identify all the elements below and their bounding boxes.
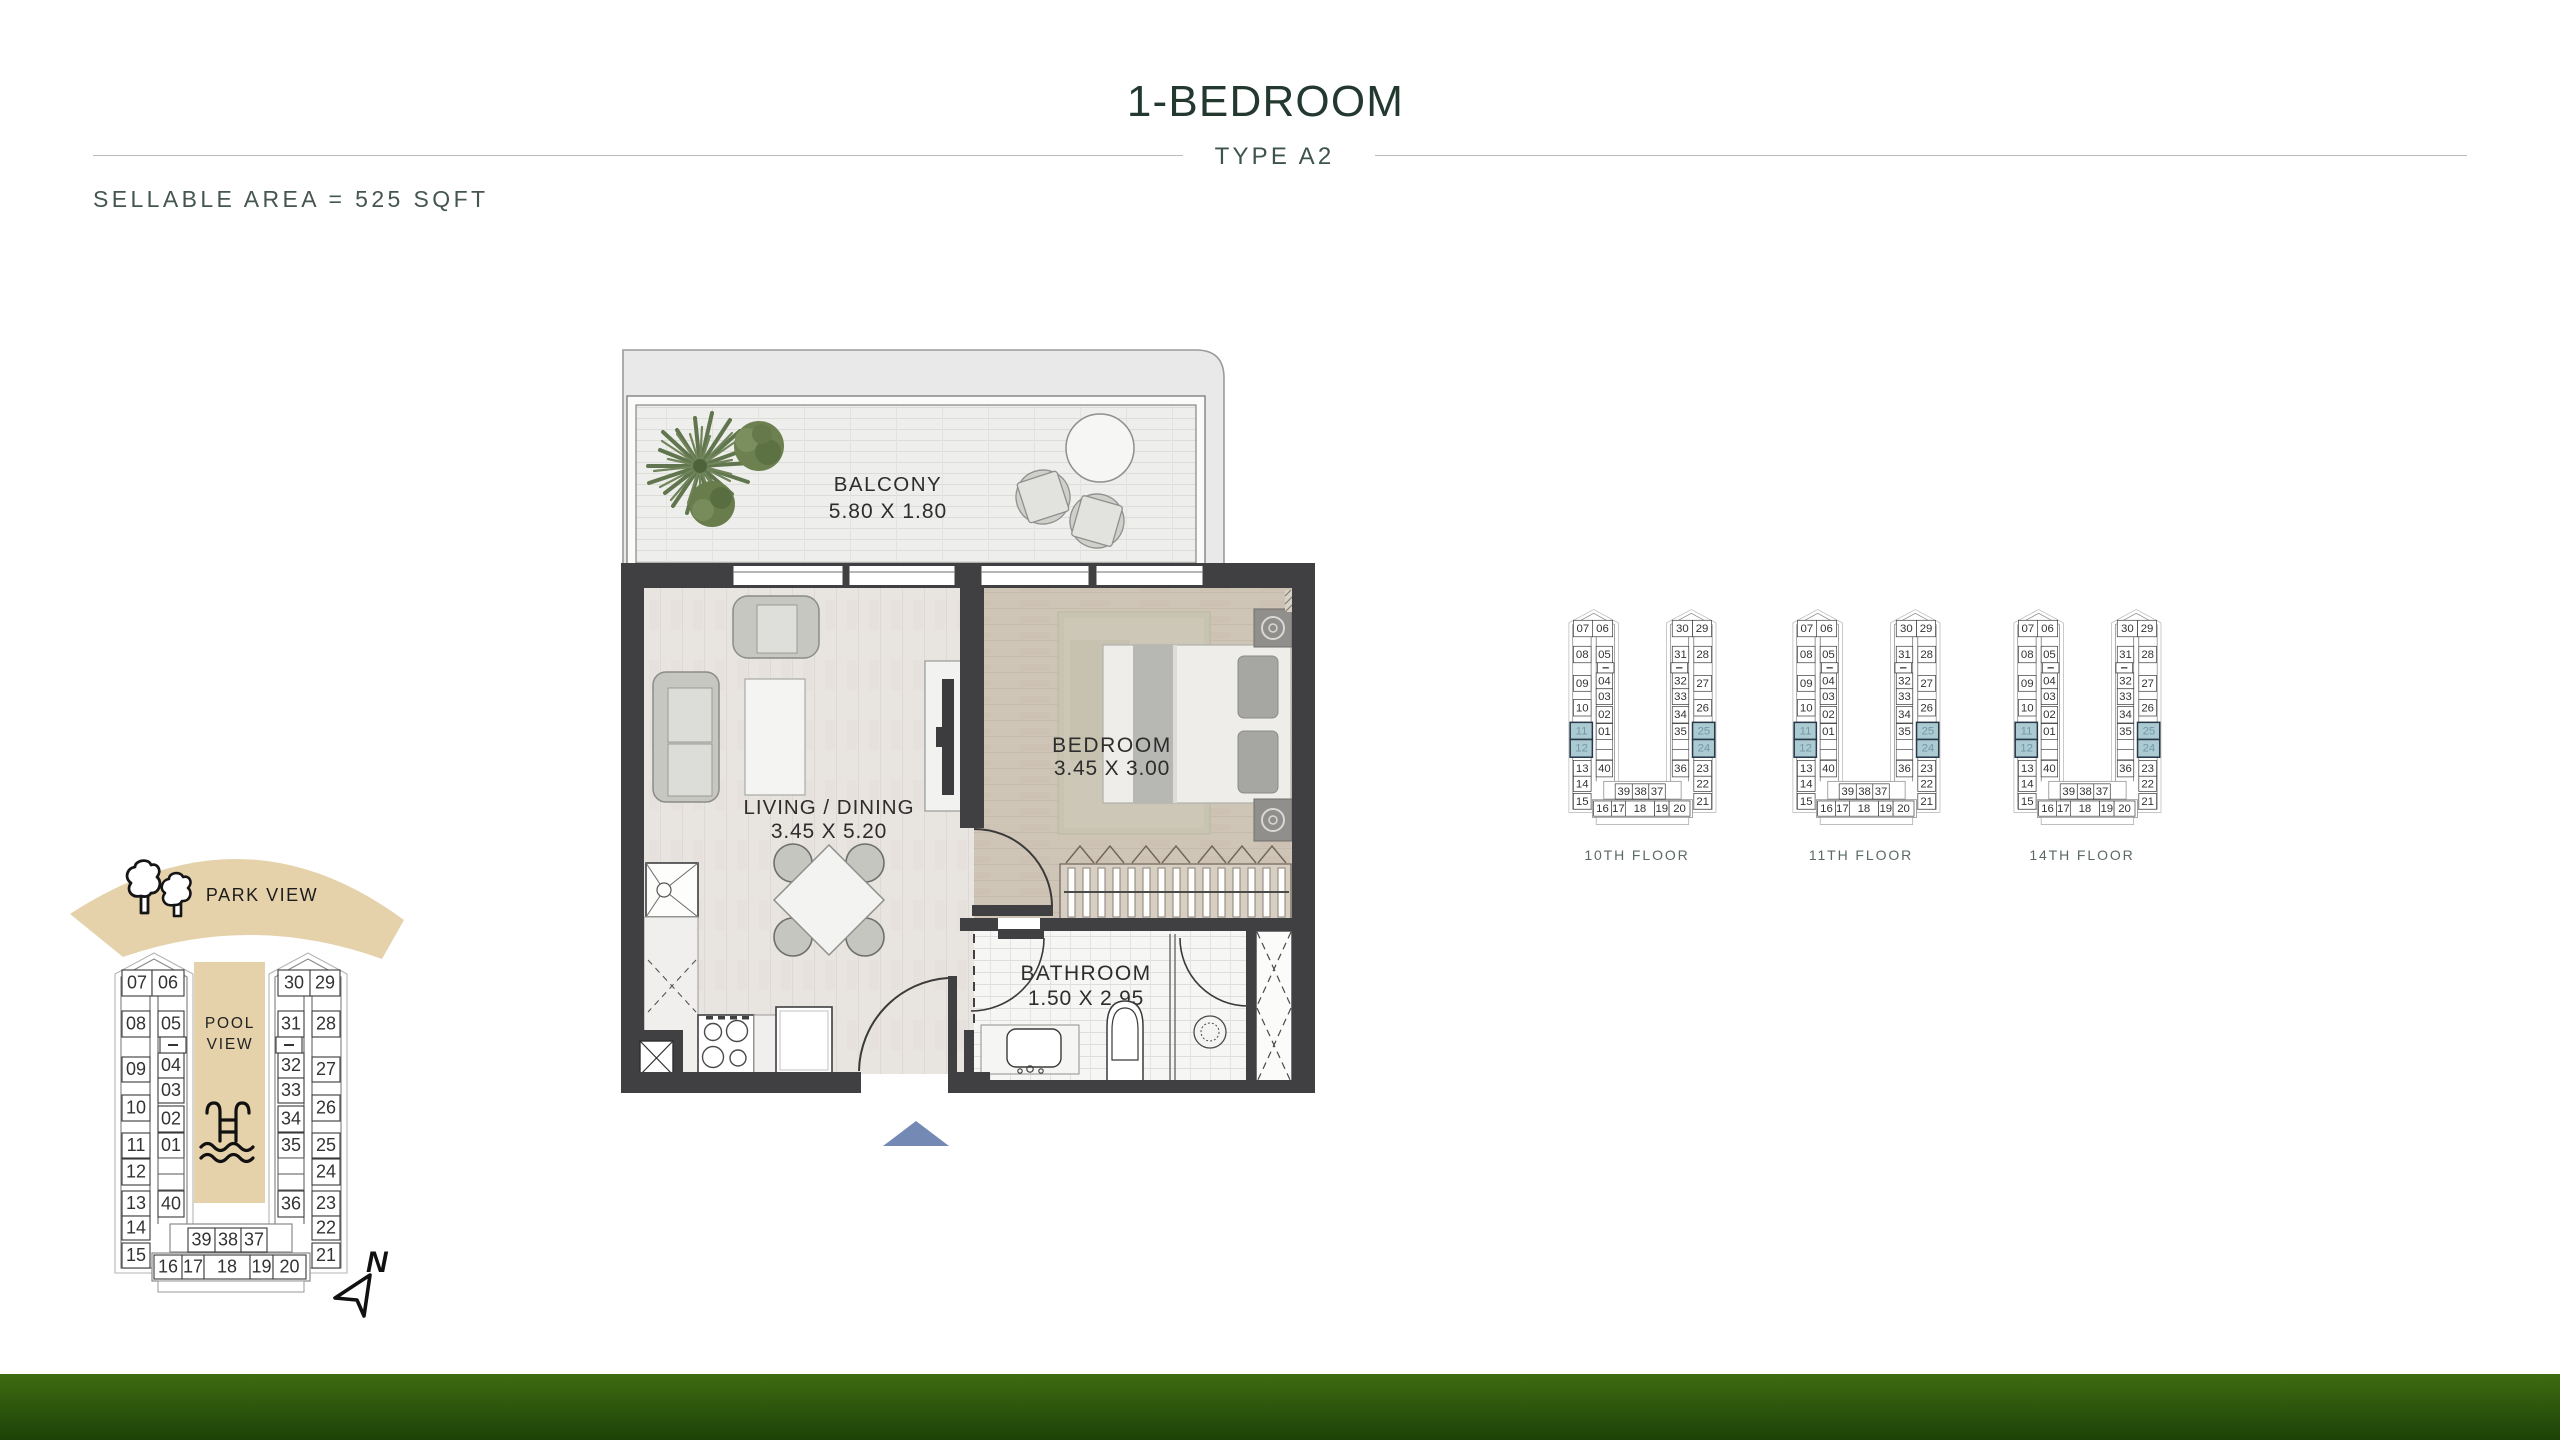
svg-text:BEDROOM: BEDROOM [1052,734,1172,757]
svg-text:12: 12 [1799,743,1812,755]
svg-text:10TH FLOOR: 10TH FLOOR [1584,847,1689,863]
svg-text:12: 12 [2020,743,2033,755]
svg-text:3.45 X 3.00: 3.45 X 3.00 [1054,757,1170,780]
svg-text:VIEW: VIEW [207,1036,254,1053]
svg-text:5.80 X 1.80: 5.80 X 1.80 [829,500,947,523]
svg-text:24: 24 [1922,743,1935,755]
svg-text:24: 24 [1698,743,1711,755]
svg-text:11: 11 [2021,725,2033,737]
svg-text:POOL: POOL [205,1015,255,1032]
svg-text:24: 24 [2143,743,2156,755]
svg-text:BALCONY: BALCONY [834,473,942,496]
svg-text:BATHROOM: BATHROOM [1021,962,1152,985]
svg-text:PARK VIEW: PARK VIEW [206,885,318,905]
svg-text:25: 25 [2143,725,2156,737]
svg-text:12: 12 [1575,743,1588,755]
svg-text:3.45 X 5.20: 3.45 X 5.20 [771,820,887,843]
svg-text:11: 11 [1576,725,1588,737]
svg-text:LIVING / DINING: LIVING / DINING [743,796,914,819]
svg-text:11TH FLOOR: 11TH FLOOR [1809,847,1913,863]
svg-text:25: 25 [1922,725,1935,737]
svg-text:11: 11 [1800,725,1812,737]
svg-text:14TH FLOOR: 14TH FLOOR [2029,847,2134,863]
svg-text:25: 25 [1698,725,1711,737]
